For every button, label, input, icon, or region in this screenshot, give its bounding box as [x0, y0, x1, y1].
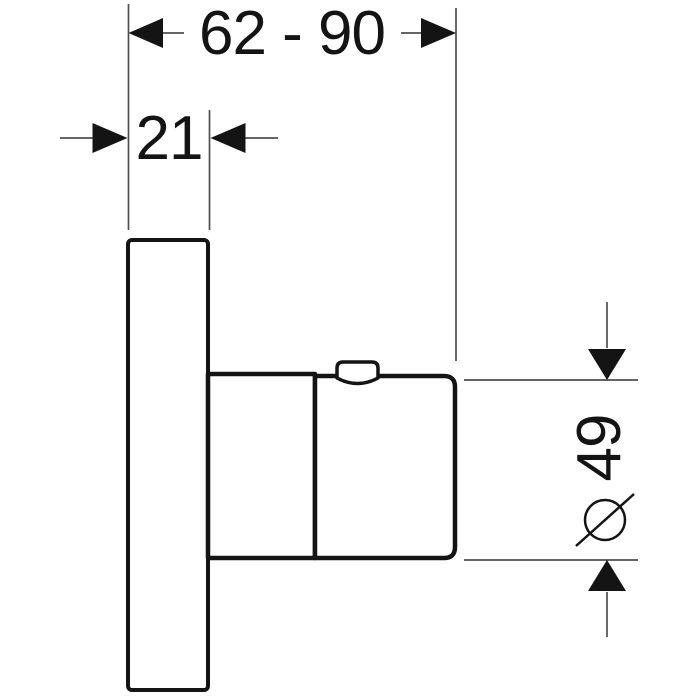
arrow-left-icon: [129, 18, 164, 48]
handle-button: [337, 362, 378, 384]
handle-body: [315, 376, 455, 558]
valve-sleeve: [208, 374, 315, 558]
arrow-down-icon: [588, 349, 626, 380]
drawing-canvas: 62 - 90 21 49: [0, 0, 700, 700]
fixture-side-view: [128, 240, 455, 690]
diameter-symbol-icon: [576, 494, 634, 546]
arrow-left-icon: [211, 123, 246, 153]
dimension-label-diameter: 49: [565, 415, 634, 482]
arrow-up-icon: [588, 560, 626, 591]
arrow-right-icon: [421, 18, 456, 48]
dimension-plate-depth: 21: [60, 104, 278, 230]
dimension-label-plate-depth: 21: [136, 104, 203, 173]
wall-plate: [128, 240, 208, 690]
technical-drawing: 62 - 90 21 49: [0, 0, 700, 700]
dimension-label-width-range: 62 - 90: [199, 0, 385, 68]
arrow-right-icon: [93, 123, 128, 153]
dimension-handle-diameter: 49: [464, 302, 638, 637]
